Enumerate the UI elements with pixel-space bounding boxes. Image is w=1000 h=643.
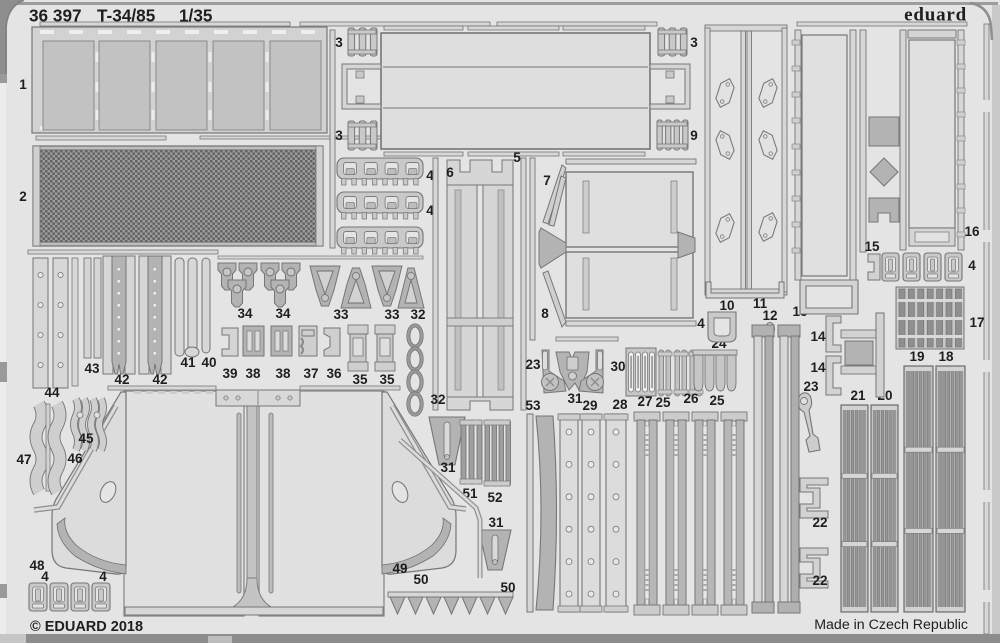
svg-text:25: 25 <box>655 395 671 410</box>
svg-text:35: 35 <box>379 372 395 387</box>
svg-text:46: 46 <box>67 451 83 466</box>
svg-text:17: 17 <box>969 315 984 330</box>
svg-text:4: 4 <box>968 258 976 273</box>
svg-text:52: 52 <box>487 490 502 505</box>
svg-text:42: 42 <box>114 372 129 387</box>
svg-text:26: 26 <box>683 391 699 406</box>
svg-text:© EDUARD 2018: © EDUARD 2018 <box>30 619 143 635</box>
svg-text:38: 38 <box>275 366 291 381</box>
svg-text:25: 25 <box>709 393 725 408</box>
svg-text:22: 22 <box>812 573 827 588</box>
svg-text:14: 14 <box>810 360 826 375</box>
svg-text:16: 16 <box>964 224 980 239</box>
svg-text:50: 50 <box>500 580 515 595</box>
svg-text:9: 9 <box>690 128 698 143</box>
svg-text:39: 39 <box>222 366 237 381</box>
svg-text:4: 4 <box>41 569 49 584</box>
svg-text:50: 50 <box>413 572 428 587</box>
svg-text:2: 2 <box>19 189 27 204</box>
svg-text:34: 34 <box>275 306 291 321</box>
svg-text:41: 41 <box>180 355 196 370</box>
svg-text:38: 38 <box>245 366 261 381</box>
svg-text:15: 15 <box>864 239 880 254</box>
svg-text:43: 43 <box>84 361 100 376</box>
svg-text:45: 45 <box>78 431 94 446</box>
svg-text:33: 33 <box>333 307 349 322</box>
svg-text:42: 42 <box>152 372 167 387</box>
svg-text:31: 31 <box>567 391 583 406</box>
svg-text:23: 23 <box>525 357 541 372</box>
svg-text:3: 3 <box>335 128 343 143</box>
svg-text:22: 22 <box>812 515 827 530</box>
svg-text:Made in Czech Republic: Made in Czech Republic <box>814 617 968 633</box>
svg-text:18: 18 <box>938 349 954 364</box>
svg-text:49: 49 <box>392 561 407 576</box>
svg-text:8: 8 <box>541 306 549 321</box>
svg-text:29: 29 <box>582 398 597 413</box>
svg-text:35: 35 <box>352 372 368 387</box>
svg-text:1: 1 <box>19 77 27 92</box>
svg-text:21: 21 <box>850 388 866 403</box>
svg-text:37: 37 <box>303 366 318 381</box>
svg-text:34: 34 <box>237 306 253 321</box>
svg-text:47: 47 <box>16 452 31 467</box>
svg-text:6: 6 <box>446 165 454 180</box>
svg-text:4: 4 <box>697 316 705 331</box>
svg-text:44: 44 <box>44 385 60 400</box>
svg-text:12: 12 <box>762 308 777 323</box>
svg-text:32: 32 <box>410 307 425 322</box>
svg-text:36: 36 <box>326 366 342 381</box>
svg-text:10: 10 <box>719 298 734 313</box>
svg-text:40: 40 <box>201 355 216 370</box>
svg-text:5: 5 <box>513 150 521 165</box>
svg-text:27: 27 <box>637 394 652 409</box>
svg-text:30: 30 <box>610 359 625 374</box>
svg-text:53: 53 <box>525 398 541 413</box>
svg-text:14: 14 <box>810 329 826 344</box>
svg-text:31: 31 <box>488 515 504 530</box>
svg-text:33: 33 <box>384 307 400 322</box>
svg-text:7: 7 <box>543 173 551 188</box>
svg-text:31: 31 <box>440 460 456 475</box>
svg-text:32: 32 <box>430 392 445 407</box>
svg-text:28: 28 <box>612 397 628 412</box>
svg-text:23: 23 <box>803 379 819 394</box>
svg-text:4: 4 <box>99 569 107 584</box>
svg-text:3: 3 <box>335 35 343 50</box>
svg-text:3: 3 <box>690 35 698 50</box>
svg-text:19: 19 <box>909 349 924 364</box>
